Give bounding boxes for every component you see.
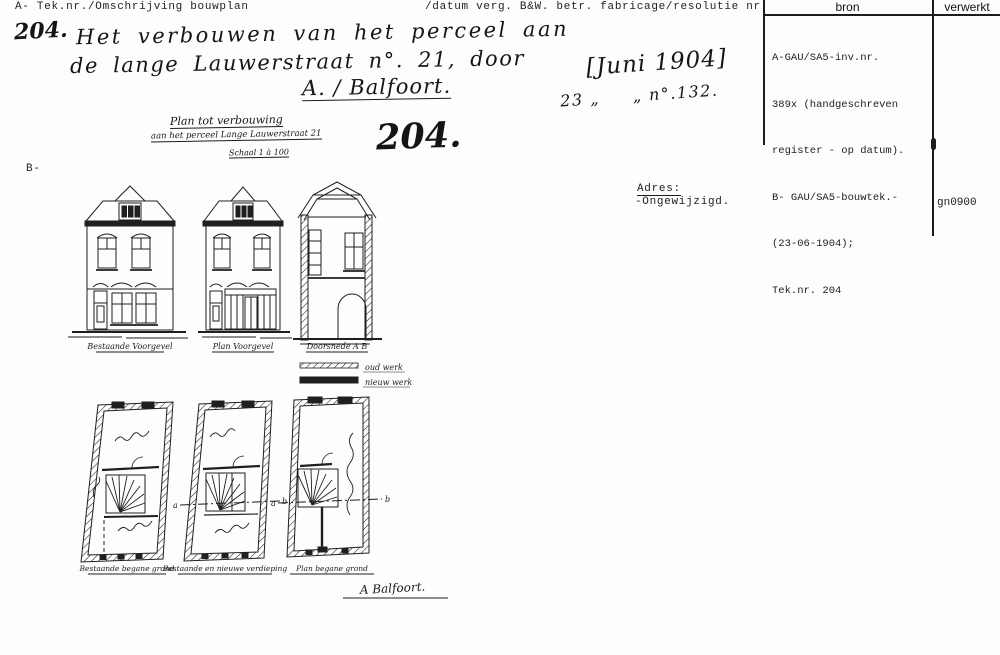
section-marker-a: a	[173, 501, 178, 510]
section-marker-b: b	[385, 495, 390, 504]
table-left-border	[763, 0, 765, 145]
legend-new-work-label: nieuw werk	[365, 378, 412, 387]
caption-plan2: Bestaande en nieuwe verdieping	[162, 564, 288, 573]
floorplan-existing-ground	[81, 402, 173, 562]
caption-facade2: Plan Voorgevel	[212, 342, 274, 351]
bron-line: Tek.nr. 204	[772, 284, 904, 300]
elevation-plan-front	[198, 187, 292, 338]
caption-plan3: Plan begane grond	[295, 564, 368, 573]
handwritten-line2: de lange Lauwerstraat n°. 21, door	[70, 46, 525, 78]
signature: A Balfoort.	[358, 580, 425, 597]
bron-line: register - op datum).	[772, 144, 904, 160]
handwritten-number: 204.	[13, 17, 68, 46]
section-drawing	[293, 182, 382, 344]
legend-old-work-label: oud werk	[365, 363, 403, 372]
handwritten-line1: Het verbouwen van het perceel aan	[76, 17, 569, 50]
bron-line: 389x (handgeschreven	[772, 98, 904, 114]
adres-value: -Ongewijzigd.	[635, 196, 730, 208]
architectural-drawing: Bestaande Voorgevel Plan Voorgevel Doors…	[60, 175, 490, 620]
adres-label: Adres:	[637, 183, 681, 196]
verwerkt-cell: gn0900	[937, 197, 977, 209]
floorplan-first-floor: a b	[173, 401, 287, 561]
plan-note-line1: Plan tot verbouwing	[170, 113, 283, 129]
table-column-divider	[932, 0, 934, 236]
bron-line: (23-06-1904);	[772, 237, 904, 253]
bron-line: A-GAU/SA5-inv.nr.	[772, 51, 904, 67]
plan-note-line2: aan het perceel Lange Lauwerstraat 21	[151, 129, 322, 143]
handwritten-name: A. / Balfoort.	[302, 74, 452, 102]
section-marker-a: a	[271, 499, 276, 508]
archive-card: A- Tek.nr./Omschrijving bouwplan /datum …	[0, 0, 1000, 655]
caption-facade1: Bestaande Voorgevel	[86, 342, 173, 351]
caption-plan1: Bestaande begane grond	[79, 564, 175, 573]
legend: oud werk nieuw werk	[300, 363, 412, 387]
big-drawing-number: 204.	[375, 115, 462, 159]
caption-section: Doorsnede A B	[306, 342, 368, 351]
bron-line: B- GAU/SA5-bouwtek.-	[772, 191, 904, 207]
section-b-label: B-	[26, 163, 41, 175]
ink-blob	[931, 138, 936, 150]
section-marker-b: b	[282, 497, 287, 506]
column-header-verwerkt: verwerkt	[934, 0, 1000, 14]
elevation-existing-front	[68, 186, 188, 338]
plan-note-line3: Schaal 1 à 100	[229, 147, 289, 158]
column-header-bron: bron	[763, 0, 932, 14]
floorplan-new-ground: a b	[271, 397, 390, 557]
date-resolution-line: 23 „ „ n°.132.	[560, 80, 720, 110]
table-header-underline	[763, 14, 1000, 16]
bron-cell: A-GAU/SA5-inv.nr. 389x (handgeschreven r…	[772, 20, 904, 330]
date-bracket: [Juni 1904]	[585, 45, 727, 81]
header-right-label: /datum verg. B&W. betr. fabricage/resolu…	[425, 1, 768, 13]
header-left-label: A- Tek.nr./Omschrijving bouwplan	[15, 1, 249, 13]
